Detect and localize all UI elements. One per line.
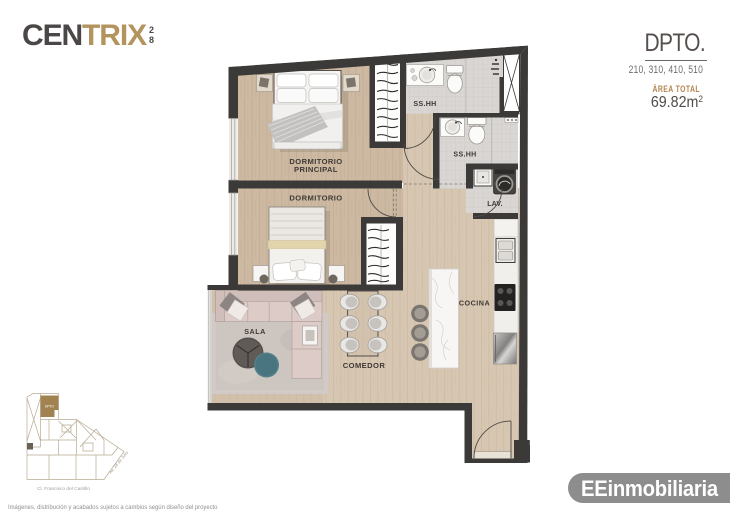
svg-text:DORMITORIO: DORMITORIO	[289, 194, 342, 203]
svg-text:COCINA: COCINA	[459, 299, 490, 308]
svg-text:SS.HH: SS.HH	[453, 151, 476, 159]
svg-text:LAV.: LAV.	[487, 201, 503, 208]
svg-text:Av. 28 de Julio: Av. 28 de Julio	[108, 449, 130, 474]
svg-text:COMEDOR: COMEDOR	[343, 361, 386, 370]
svg-text:SS.HH: SS.HH	[413, 100, 436, 108]
svg-text:PRINCIPAL: PRINCIPAL	[294, 165, 338, 174]
svg-text:DPTO: DPTO	[45, 405, 54, 409]
svg-text:SALA: SALA	[244, 327, 266, 336]
svg-text:Cl. Francisco del Castillo: Cl. Francisco del Castillo	[37, 486, 90, 492]
